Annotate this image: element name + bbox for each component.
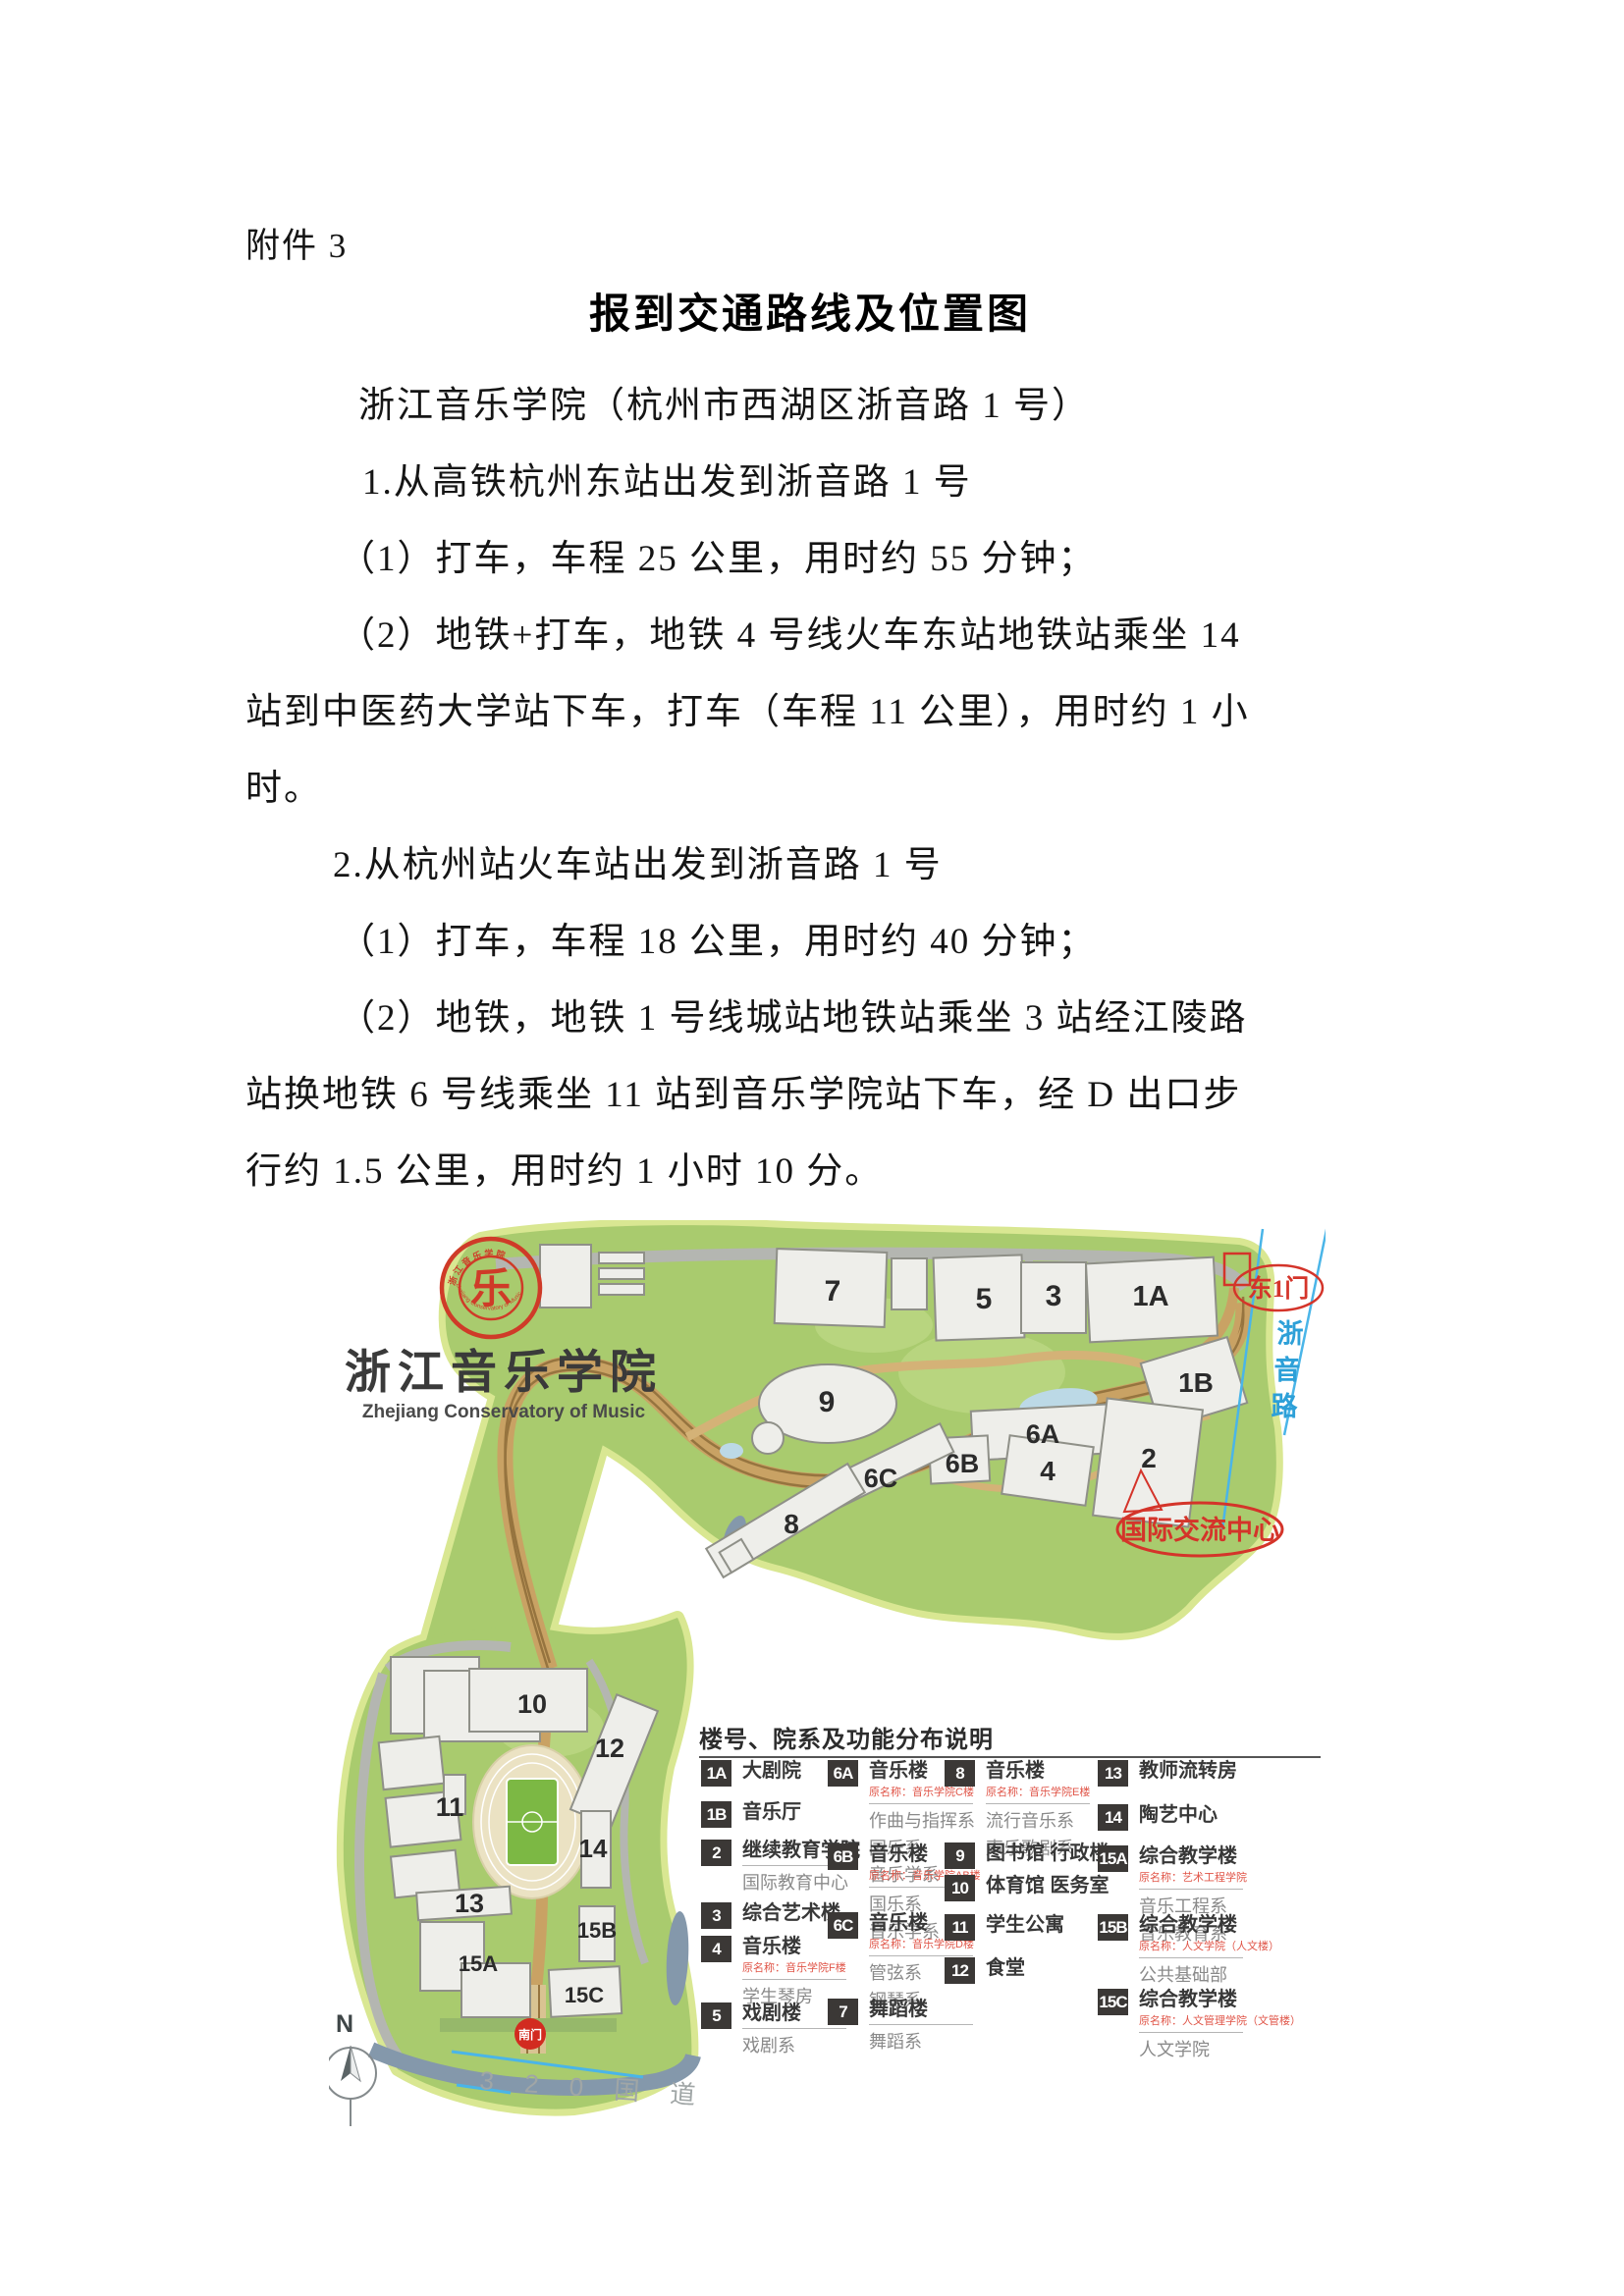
legend-name-9: 图书馆 行政楼 bbox=[986, 1842, 1110, 1864]
road-char-3: 路 bbox=[1272, 1391, 1299, 1421]
doc-line-address: 浙江音乐学院（杭州市西湖区浙音路 1 号） bbox=[358, 375, 1090, 428]
legend-badge-8: 8 bbox=[945, 1760, 975, 1787]
legend-name-8: 音乐楼 bbox=[986, 1760, 1090, 1782]
building-label-8: 8 bbox=[784, 1509, 799, 1539]
legend-badge-3: 3 bbox=[701, 1902, 731, 1929]
legend-rule-6C bbox=[869, 1955, 973, 1956]
east-gate-label: 东1门 bbox=[1248, 1274, 1310, 1303]
legend-entry-1B: 1B音乐厅 bbox=[701, 1801, 801, 1828]
legend-entry-12: 12食堂 bbox=[945, 1957, 1025, 1984]
road-char-2: 音 bbox=[1274, 1355, 1301, 1385]
building-label-5: 5 bbox=[976, 1283, 993, 1315]
legend-name-12: 食堂 bbox=[986, 1957, 1025, 1979]
legend-entry-4: 4音乐楼原名称：音乐学院F楼学生琴房 bbox=[701, 1936, 846, 2007]
legend-badge-4: 4 bbox=[701, 1936, 731, 1962]
building-label-15C: 15C bbox=[565, 1983, 604, 2007]
doc-line-r1-metro2: 站到中医药大学站下车，打车（车程 11 公里），用时约 1 小 bbox=[245, 681, 1250, 734]
building-label-14: 14 bbox=[579, 1834, 608, 1863]
legend-original-name-15B: 原名称：人文学院（人文楼） bbox=[1139, 1938, 1279, 1953]
road-char-1: 浙 bbox=[1277, 1319, 1304, 1349]
legend-dept-8-0: 流行音乐系 bbox=[986, 1811, 1090, 1832]
legend-original-name-15C: 原名称：人文管理学院（文管楼） bbox=[1139, 2012, 1301, 2028]
compass-n-label: N bbox=[336, 2010, 353, 2038]
legend-badge-6B: 6B bbox=[828, 1843, 858, 1870]
building-label-1A: 1A bbox=[1132, 1281, 1168, 1312]
building-label-12: 12 bbox=[595, 1734, 624, 1763]
legend-name-10: 体育馆 医务室 bbox=[986, 1875, 1110, 1896]
legend-badge-12: 12 bbox=[945, 1957, 975, 1984]
legend-name-1A: 大剧院 bbox=[742, 1760, 801, 1782]
doc-line-r1-metro: （2）地铁+打车，地铁 4 号线火车东站地铁站乘坐 14 bbox=[339, 605, 1241, 658]
legend-badge-14: 14 bbox=[1098, 1804, 1128, 1831]
legend-name-14: 陶艺中心 bbox=[1139, 1804, 1218, 1826]
legend-badge-15B: 15B bbox=[1098, 1914, 1128, 1941]
legend-badge-10: 10 bbox=[945, 1875, 975, 1901]
legend-badge-2: 2 bbox=[701, 1840, 731, 1866]
building-label-6C: 6C bbox=[864, 1464, 898, 1493]
legend-original-name-8: 原名称：音乐学院E楼 bbox=[986, 1784, 1090, 1799]
building-label-6B: 6B bbox=[946, 1449, 980, 1478]
document-page: 附件 3 报到交通路线及位置图 浙江音乐学院（杭州市西湖区浙音路 1 号） 1.… bbox=[0, 0, 1624, 2296]
legend-dept-15C-0: 人文学院 bbox=[1139, 2040, 1301, 2060]
building-label-13: 13 bbox=[455, 1889, 484, 1918]
seal-glyph: 乐 bbox=[470, 1266, 512, 1312]
legend-dept-7-0: 舞蹈系 bbox=[869, 2032, 973, 2053]
legend-badge-13: 13 bbox=[1098, 1760, 1128, 1787]
legend-name-11: 学生公寓 bbox=[986, 1914, 1064, 1936]
legend-name-7: 舞蹈楼 bbox=[869, 1999, 973, 2020]
doc-line-r1-metro3: 时。 bbox=[245, 758, 322, 811]
legend-badge-9: 9 bbox=[945, 1842, 975, 1869]
legend-name-1B: 音乐厅 bbox=[742, 1801, 801, 1823]
building-label-1B: 1B bbox=[1178, 1367, 1214, 1398]
legend-rule-15A bbox=[1139, 1889, 1243, 1890]
south-gate-label: 南门 bbox=[518, 2027, 542, 2042]
building-label-3: 3 bbox=[1046, 1280, 1062, 1312]
intl-center-label: 国际交流中心 bbox=[1120, 1515, 1279, 1545]
doc-line-r2-metro3: 行约 1.5 公里，用时约 1 小时 10 分。 bbox=[245, 1141, 883, 1194]
legend-entry-7: 7舞蹈楼舞蹈系 bbox=[828, 1999, 973, 2053]
legend-badge-11: 11 bbox=[945, 1914, 975, 1941]
building-label-11: 11 bbox=[436, 1792, 464, 1822]
legend-badge-15C: 15C bbox=[1098, 1989, 1128, 2015]
stadium bbox=[473, 1745, 591, 1898]
legend-rule-15B bbox=[1139, 1957, 1243, 1958]
legend-entry-13: 13教师流转房 bbox=[1098, 1760, 1237, 1787]
legend-entry-1A: 1A大剧院 bbox=[701, 1760, 801, 1787]
legend-dept-15B-0: 公共基础部 bbox=[1139, 1965, 1279, 1986]
legend-name-15B: 综合教学楼 bbox=[1139, 1914, 1279, 1936]
legend-badge-6C: 6C bbox=[828, 1912, 858, 1939]
legend-entry-15B: 15B综合教学楼原名称：人文学院（人文楼）公共基础部 bbox=[1098, 1914, 1279, 1986]
building-label-10: 10 bbox=[517, 1689, 547, 1719]
legend-name-15C: 综合教学楼 bbox=[1139, 1989, 1301, 2010]
building-label-15A: 15A bbox=[459, 1951, 498, 1976]
legend-badge-1B: 1B bbox=[701, 1801, 731, 1828]
legend-name-3: 综合艺术楼 bbox=[742, 1902, 840, 1924]
logo-name-cn: 浙江音乐学院 bbox=[345, 1348, 663, 1399]
legend-entry-15C: 15C综合教学楼原名称：人文管理学院（文管楼）人文学院 bbox=[1098, 1989, 1301, 2060]
legend-entry-9: 9图书馆 行政楼 bbox=[945, 1842, 1110, 1869]
legend-entry-3: 3综合艺术楼 bbox=[701, 1902, 840, 1929]
doc-line-r2-taxi: （1）打车，车程 18 公里，用时约 40 分钟； bbox=[339, 911, 1097, 964]
building-label-2: 2 bbox=[1141, 1443, 1157, 1473]
legend-rule-8 bbox=[986, 1803, 1090, 1804]
legend-badge-6A: 6A bbox=[828, 1760, 858, 1787]
doc-line-route2: 2.从杭州站火车站出发到浙音路 1 号 bbox=[333, 834, 943, 887]
compass: N bbox=[329, 2010, 376, 2126]
legend-badge-15A: 15A bbox=[1098, 1845, 1128, 1872]
building-label-6A: 6A bbox=[1026, 1419, 1060, 1449]
logo-name-en: Zhejiang Conservatory of Music bbox=[362, 1402, 646, 1422]
legend-name-13: 教师流转房 bbox=[1139, 1760, 1237, 1782]
building-label-4: 4 bbox=[1040, 1456, 1056, 1486]
legend-entry-14: 14陶艺中心 bbox=[1098, 1804, 1218, 1831]
legend-entry-5: 5戏剧楼戏剧系 bbox=[701, 2002, 846, 2056]
attachment-label: 附件 3 bbox=[245, 218, 348, 268]
page-title: 报到交通路线及位置图 bbox=[245, 281, 1375, 341]
legend-title: 楼号、院系及功能分布说明 bbox=[699, 1720, 994, 1754]
legend-title-rule bbox=[699, 1756, 1321, 1758]
doc-line-r2-metro: （2）地铁，地铁 1 号线城站地铁站乘坐 3 站经江陵路 bbox=[339, 988, 1248, 1041]
legend-entry-11: 11学生公寓 bbox=[945, 1914, 1064, 1941]
doc-line-r1-taxi: （1）打车，车程 25 公里，用时约 55 分钟； bbox=[339, 528, 1097, 581]
legend-rule-15C bbox=[1139, 2032, 1243, 2033]
doc-line-route1: 1.从高铁杭州东站出发到浙音路 1 号 bbox=[362, 452, 972, 505]
doc-line-r2-metro2: 站换地铁 6 号线乘坐 11 站到音乐学院站下车，经 D 出口步 bbox=[245, 1064, 1241, 1117]
legend-rule-7 bbox=[869, 2024, 973, 2025]
legend-name-15A: 综合教学楼 bbox=[1139, 1845, 1247, 1867]
building-label-7: 7 bbox=[825, 1275, 841, 1308]
building-label-15B: 15B bbox=[577, 1918, 617, 1943]
legend-entry-10: 10体育馆 医务室 bbox=[945, 1875, 1110, 1901]
legend-original-name-15A: 原名称：艺术工程学院 bbox=[1139, 1869, 1247, 1885]
building-label-9: 9 bbox=[819, 1386, 836, 1418]
legend-badge-7: 7 bbox=[828, 1999, 858, 2025]
legend-badge-5: 5 bbox=[701, 2002, 731, 2029]
legend-badge-1A: 1A bbox=[701, 1760, 731, 1787]
